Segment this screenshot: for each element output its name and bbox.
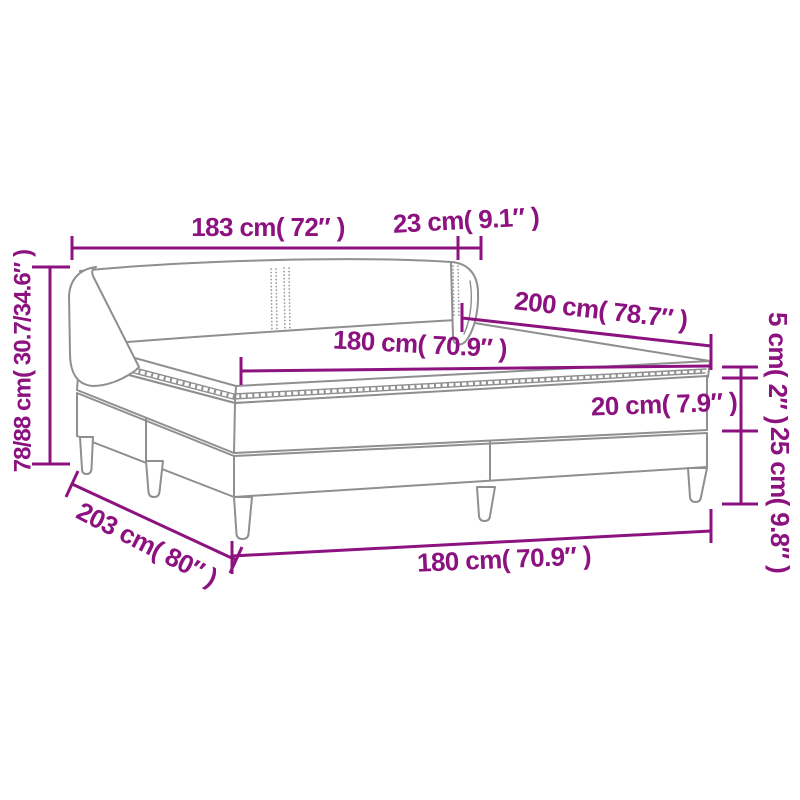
dim-tick	[66, 471, 78, 497]
label-topper-thickness: 5 cm( 2″ )	[763, 312, 793, 424]
label-mattress-thickness: 20 cm( 7.9″ )	[590, 386, 737, 421]
label-base-height: 25 cm( 9.8″ )	[765, 427, 795, 573]
bed-leg	[234, 497, 252, 539]
diagram-canvas: 183 cm( 72″ ) 23 cm( 9.1″ ) 200 cm( 78.7…	[0, 0, 800, 800]
label-headboard-side-depth: 23 cm( 9.1″ )	[392, 201, 540, 239]
bed-dimension-diagram: 183 cm( 72″ ) 23 cm( 9.1″ ) 200 cm( 78.7…	[0, 0, 800, 800]
mattress-corner-edge	[234, 403, 235, 453]
label-headboard-width: 183 cm( 72″ )	[191, 212, 345, 242]
dim-overall-height	[32, 267, 70, 464]
bed-leg	[80, 437, 93, 474]
label-overall-height: 78/88 cm( 30.7/34.6″ )	[10, 250, 37, 473]
bed-leg	[146, 461, 163, 497]
bed-leg	[477, 487, 495, 521]
bed-leg	[688, 468, 707, 502]
label-base-width: 180 cm( 70.9″ )	[416, 540, 591, 578]
